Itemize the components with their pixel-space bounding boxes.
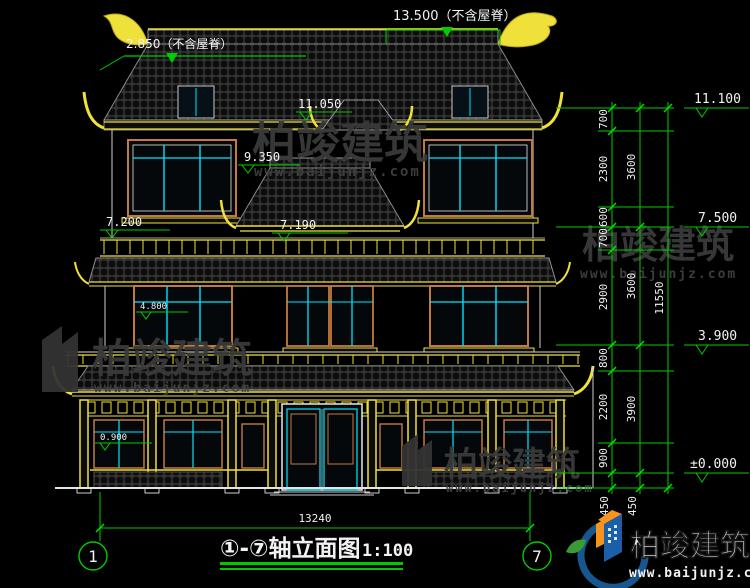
- axis-number-left: 1: [88, 547, 98, 566]
- watermark-left: 柏竣建筑 www.baijunjz.com: [42, 326, 252, 396]
- brand-logo: 柏竣建筑 www.baijunjz.com: [566, 510, 750, 587]
- dim-700a: 700: [597, 109, 610, 129]
- deco-rect: [534, 402, 543, 413]
- elev-label: 4.800: [140, 302, 167, 312]
- pent-roof-band: [75, 258, 570, 286]
- dim-2300: 2300: [597, 156, 610, 183]
- title-underline-2: [220, 568, 403, 570]
- column: [80, 400, 88, 488]
- deco-rect: [182, 402, 191, 413]
- window-1f-narrow-right: [380, 424, 402, 468]
- entry-door: [282, 404, 362, 490]
- elev-label: 3.900: [698, 329, 737, 344]
- dim-800: 800: [597, 348, 610, 368]
- ridge-secondary-label: 2.850（不含屋脊）: [126, 36, 232, 51]
- lower-eave-tip-right: [574, 366, 593, 394]
- eave-tip-right: [542, 92, 562, 128]
- elev-label: 7.190: [280, 218, 316, 232]
- deco-rect: [214, 402, 223, 413]
- cad-elevation-drawing: 柏竣建筑 www.baijunjz.com 柏竣建筑 www.baijunjz.…: [0, 0, 750, 588]
- elev-right-0000: ±0.000: [684, 457, 749, 482]
- window-1f-a: [94, 420, 144, 468]
- deco-rect: [118, 402, 127, 413]
- dim-3900: 3900: [625, 396, 638, 423]
- elev-right-11100: 11.100: [684, 92, 749, 117]
- watermark-logo-glyph: [42, 326, 78, 392]
- title-text: ①-⑦轴立面图: [220, 535, 361, 562]
- dim-600: 600: [597, 207, 610, 227]
- railing-3f: [100, 238, 545, 256]
- dim-2200: 2200: [597, 394, 610, 421]
- pent-tip-left: [75, 262, 89, 284]
- title-underline-1: [220, 562, 403, 565]
- watermark-url: www.baijunjz.com: [580, 267, 737, 282]
- deco-rect: [470, 402, 479, 413]
- watermark-name: 柏竣建筑: [444, 445, 580, 485]
- elev-right-3900: 3.900: [684, 329, 749, 354]
- watermark-name: 柏竣建筑: [92, 336, 252, 382]
- ridge-total-label: 13.500（不含屋脊）: [393, 8, 517, 24]
- window-3f-right: [418, 140, 538, 223]
- deco-rect: [422, 402, 431, 413]
- deco-rect: [198, 402, 207, 413]
- dim-900: 900: [597, 448, 610, 468]
- dim-450b: 450: [626, 496, 639, 516]
- watermark-center: 柏竣建筑 www.baijunjz.com: [252, 118, 428, 180]
- window-2f-right: [424, 286, 534, 352]
- elev-label: 7.200: [106, 215, 142, 229]
- elev-label: 9.350: [244, 150, 280, 164]
- title-scale: 1:100: [362, 541, 413, 561]
- deco-rect: [518, 402, 527, 413]
- deco-rect: [390, 402, 399, 413]
- column: [368, 400, 376, 488]
- elev-label: 7.500: [698, 211, 737, 226]
- ridge-secondary-leader: [100, 56, 124, 70]
- dim-700b: 700: [597, 228, 610, 248]
- pent-tip-right: [556, 262, 570, 284]
- dim-3600a: 3600: [625, 154, 638, 181]
- column: [228, 400, 236, 488]
- deco-rect: [134, 402, 143, 413]
- deco-rect: [102, 402, 111, 413]
- deco-rect: [246, 402, 255, 413]
- drawing-canvas: 柏竣建筑 www.baijunjz.com 柏竣建筑 www.baijunjz.…: [0, 0, 750, 588]
- axis-number-right: 7: [532, 547, 542, 566]
- building-elevation: [53, 13, 593, 495]
- watermark-bottom: 柏竣建筑 www.baijunjz.com: [402, 434, 594, 495]
- logo-brand-name: 柏竣建筑: [630, 529, 750, 564]
- dim-2900: 2900: [597, 284, 610, 311]
- deco-rect: [166, 402, 175, 413]
- deco-rect: [454, 402, 463, 413]
- dim-11550: 11550: [653, 281, 666, 314]
- watermark-url: www.baijunjz.com: [94, 381, 251, 396]
- window-2f-center: [283, 286, 377, 352]
- spandrel-left: [94, 472, 222, 488]
- window-1f-narrow-left: [242, 424, 264, 468]
- window-1f-b: [164, 420, 222, 468]
- column: [268, 400, 276, 488]
- logo-brand-url: www.baijunjz.com: [629, 566, 750, 581]
- elev-label: 0.900: [100, 433, 127, 443]
- drawing-title: ①-⑦轴立面图 1:100: [220, 535, 413, 570]
- elev-label: 11.050: [298, 97, 341, 111]
- watermark-url: www.baijunjz.com: [254, 164, 421, 180]
- deco-rect: [438, 402, 447, 413]
- dim-3600b: 3600: [625, 273, 638, 300]
- eave-tip-left: [84, 92, 104, 128]
- elev-label: 11.100: [694, 92, 741, 107]
- deco-rect: [502, 402, 511, 413]
- dim-13240: 13240: [298, 512, 331, 525]
- elev-label: ±0.000: [690, 457, 737, 472]
- right-elevation-markers: 11.100 7.500 3.900 ±0.000: [684, 92, 749, 482]
